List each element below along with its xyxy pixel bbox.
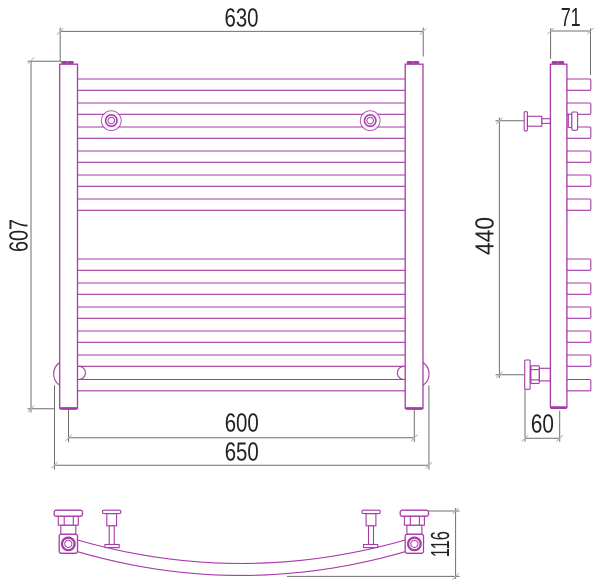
svg-text:60: 60 (531, 411, 554, 439)
svg-text:71: 71 (561, 4, 581, 32)
svg-text:607: 607 (6, 219, 34, 252)
svg-text:600: 600 (225, 410, 259, 438)
svg-text:630: 630 (225, 5, 259, 33)
svg-text:116: 116 (427, 531, 455, 557)
svg-text:440: 440 (472, 217, 500, 255)
svg-text:650: 650 (225, 438, 259, 466)
